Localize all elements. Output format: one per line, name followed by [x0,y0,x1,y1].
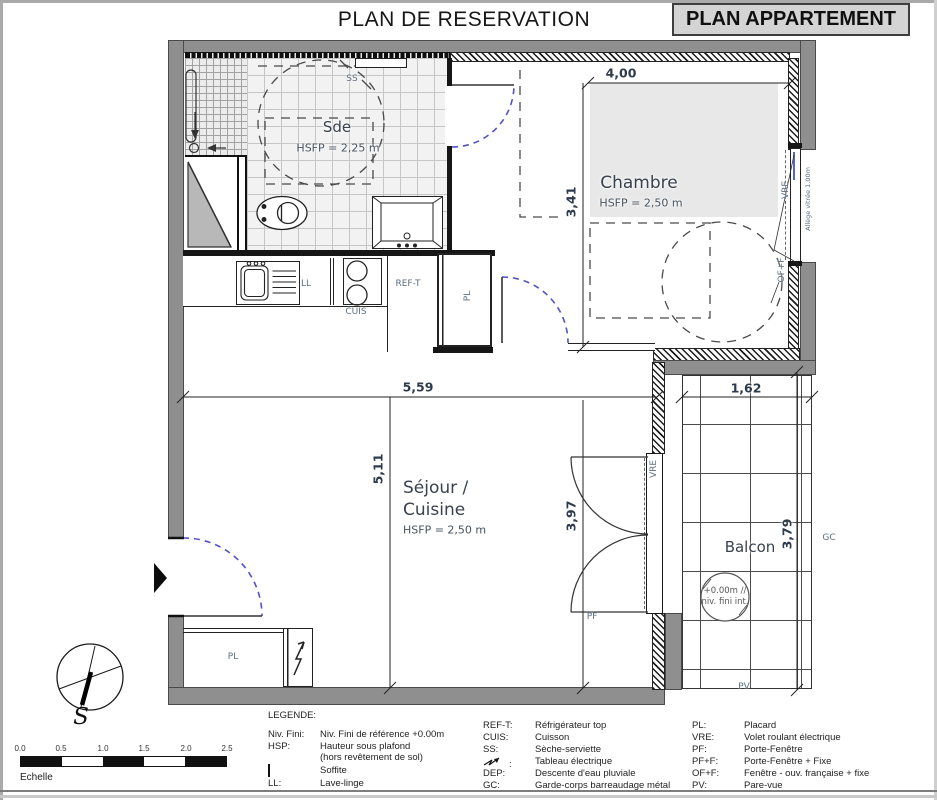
legend-entry: PV: Pare-vue [692,780,783,792]
legend-desc: Soffite [320,765,347,777]
legend-title: LEGENDE: [268,710,316,721]
dim-chambre-width: 4,00 [606,66,637,81]
entrance-arrow-icon [154,563,167,593]
legend-entry: VRE: Volet roulant électrique [692,732,841,744]
legend-abbr: LL: [268,778,320,790]
legend-abbr: SS: [483,744,535,756]
wall-right-mid [800,262,816,375]
chambre-window-glazing [793,152,795,180]
plan-appartement-label: PLAN APPARTEMENT [686,8,896,31]
legend-desc: Placard [744,720,776,732]
room-label-sejour-1: Séjour / [403,478,468,498]
legend-entry: PF: Porte-Fenêtre [692,744,803,756]
legend-abbr: PV: [692,780,744,792]
page-title: PLAN DE RESERVATION [338,8,590,32]
scale-tick-0: 0.0 [14,744,25,753]
legend-abbr: PF: [692,744,744,756]
legend-entry: Niv. Fini: Niv. Fini de référence +0.00m [268,729,444,741]
floor-plan-page: PLAN DE RESERVATION PLAN APPARTEMENT [0,0,937,800]
window-jamb-top [788,143,802,148]
legend-entry: PF+F: Porte-Fenêtre + Fixe [692,756,831,768]
legend-abbr [268,752,320,764]
legend-desc: Porte-Fenêtre + Fixe [744,756,831,768]
room-label-chambre: Chambre [600,173,678,193]
legend-entry: GC: Garde-corps barreaudage métal [483,780,670,792]
shower-tray [185,58,247,157]
legend-entry: Soffite [268,765,347,777]
level-text-1: +0.00m // [704,586,747,596]
label-ss: SS [346,74,357,84]
legend-abbr: CUIS: [483,732,535,744]
legend-desc: Cuisson [535,732,569,744]
legend-entry: (hors revêtement de sol) [268,752,423,764]
dim-balcon-width: 1,62 [731,381,762,396]
legend-abbr: HSP: [268,741,320,753]
legend-abbr: GC: [483,780,535,792]
legend-entry: REF-T: Réfrigérateur top [483,720,606,732]
legend-desc: Volet roulant électrique [744,732,841,744]
fridge-alcove [387,256,437,352]
scale-tick-2: 1.0 [97,744,108,753]
scale-label: Echelle [20,772,53,783]
label-vre-window: VRE [781,181,791,199]
wall-balcony-left [665,613,682,690]
counter-divider [330,258,334,305]
kitchen-sink-unit [236,261,300,305]
balcony-line-1 [700,376,701,689]
legend-abbr: Niv. Fini: [268,729,320,741]
wall-bottom [168,687,665,705]
legend-desc: Niv. Fini de référence +0.00m [320,729,444,741]
wall-balcony-top [653,360,816,375]
legend-entry: DEP: Descente d'eau pluviale [483,768,636,780]
wall-left-upper [168,40,184,538]
compass-south-label: S [73,704,89,730]
scale-tick-4: 2.0 [180,744,191,753]
scale-seg-1 [21,757,62,766]
legend-desc: Hauteur sous plafond [320,741,410,753]
legend-desc: Porte-Fenêtre [744,744,803,756]
page-frame-left [0,0,3,800]
scale-tick-5: 2.5 [221,744,232,753]
chambre-window-frame [790,148,801,262]
legend-abbr: OF+F: [692,768,744,780]
tableau-electrique-symbol-icon [483,756,509,767]
shower-partition [237,157,247,250]
legend-desc: Réfrigérateur top [535,720,606,732]
legend-abbr: REF-T: [483,720,535,732]
dim-pf-height: 3,97 [564,501,579,532]
balcony-guardrail-line-2 [801,376,802,689]
legend-entry: PL: Placard [692,720,776,732]
room-label-sejour-2: Cuisine [403,500,465,520]
dim-chambre-height: 3,41 [564,187,579,218]
compass-icon [57,644,123,710]
closet-entry-front [183,628,283,633]
soffit-box [355,58,407,68]
label-gc: GC [822,533,835,543]
legend-abbr: PL: [692,720,744,732]
label-of-f: OF+F [777,258,787,283]
scale-tick-1: 0.5 [55,744,66,753]
pf-door-arcs [571,457,648,612]
label-pv: PV [738,682,750,692]
legend-desc: Fenêtre - ouv. française + fixe [744,768,869,780]
legend-entry: LL: Lave-linge [268,778,364,790]
label-ref-t: REF-T [395,279,420,289]
wall-top-insulation-chambre [450,52,790,62]
level-text-2: niv. fini int. [701,597,748,607]
scale-bar [20,756,227,767]
label-allege: Allège vitrée 1.00m [804,167,812,231]
shower-entry [185,157,237,250]
room-hsfp-chambre: HSFP = 2,50 m [599,197,682,210]
label-pl-entry: PL [228,652,238,662]
room-label-balcon: Balcon [725,538,776,556]
balcony-guardrail-line-1 [797,376,798,689]
balcony-line-2 [750,376,751,689]
legend-entry: HSP: Hauteur sous plafond [268,741,410,753]
scale-seg-5 [185,757,226,766]
dim-balcon-height: 3,79 [780,519,795,550]
wall-chambre-bottom [568,343,655,351]
pf-volet-dashed [644,458,645,609]
wall-sejour-balcony-upper [652,362,665,454]
window-volet-dashed [785,150,786,260]
scale-seg-4 [144,757,185,766]
wall-right-upper [800,40,816,150]
label-cuis: CUIS [345,307,366,317]
label-pf: PF [587,612,598,622]
scale-seg-3 [103,757,144,766]
legend-desc: (hors revêtement de sol) [320,752,423,764]
legend-desc: Sèche-serviette [535,744,601,756]
legend-entry: OF+F: Fenêtre - ouv. française + fixe [692,768,869,780]
scale-tick-3: 1.5 [138,744,149,753]
room-label-sde: Sde [323,118,351,136]
label-vre-pf: VRE [649,460,659,478]
electrical-panel-box [283,628,313,687]
legend-entry: SS: Sèche-serviette [483,744,601,756]
label-pl-kitchen: PL [463,291,473,301]
cooktop-unit [343,258,382,305]
soffite-symbol-icon [268,764,270,777]
legend-entry: CUIS: Cuisson [483,732,569,744]
room-hsfp-sde: HSFP = 2,25 m [296,142,379,155]
legend-abbr: DEP: [483,768,535,780]
legend-desc: Descente d'eau pluviale [535,768,636,780]
legend-desc: Pare-vue [744,780,783,792]
legend-abbr: PF+F: [692,756,744,768]
sde-door-opening [445,86,454,146]
legend-abbr [268,765,320,777]
plan-appartement-box: PLAN APPARTEMENT [672,3,910,36]
dim-sejour-width: 5,59 [403,380,434,395]
wall-right-insulation-bottom [788,262,799,350]
dim-sejour-height: 5,11 [371,454,386,485]
wall-sejour-balcony-lower [652,613,665,690]
wall-right-insulation-top [788,58,799,150]
scale-seg-2 [62,757,103,766]
window-jamb-bottom [788,261,802,266]
wall-closet-bottom [433,347,493,353]
legend-desc: Garde-corps barreaudage métal [535,780,670,792]
label-ll: LL [301,279,311,289]
washbasin-unit [372,196,443,249]
page-frame-bottom2 [0,795,937,798]
legend-desc: Lave-linge [320,778,364,790]
legend-abbr: VRE: [692,732,744,744]
page-frame-bottom [0,790,937,792]
room-hsfp-sejour: HSFP = 2,50 m [403,524,486,537]
